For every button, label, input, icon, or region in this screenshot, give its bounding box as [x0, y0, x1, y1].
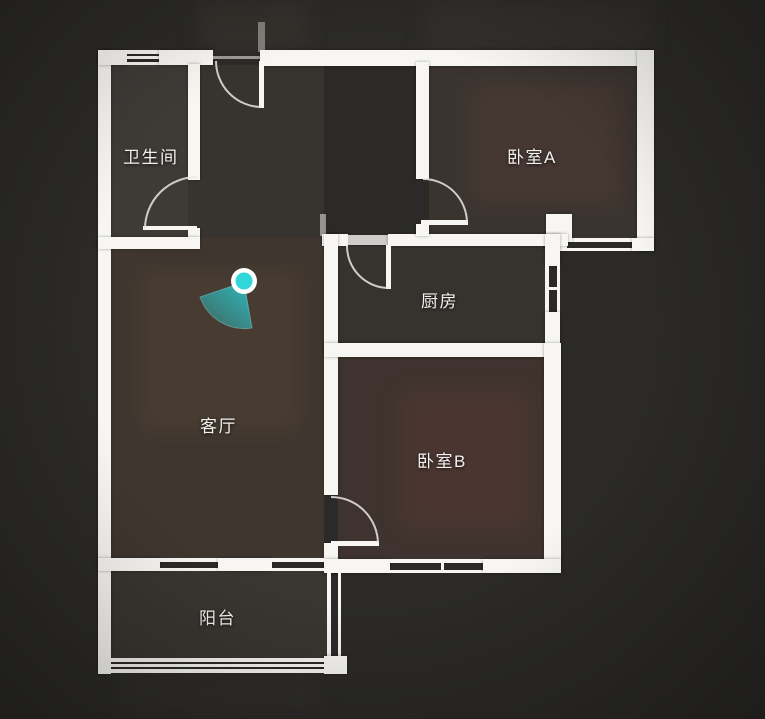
kitchen-door-arc	[347, 246, 388, 288]
camera-dot	[236, 273, 253, 290]
room-label-balcony[interactable]: 阳台	[199, 604, 236, 629]
camera-position-indicator[interactable]	[200, 268, 257, 329]
bedroom-a-door-arc	[423, 179, 467, 222]
floorplan-viewer: 卫生间 卧室A 厨房 客厅 卧室B 阳台	[0, 0, 765, 719]
room-label-bedroom-b[interactable]: 卧室B	[417, 447, 467, 472]
bathroom-door-arc	[145, 177, 197, 229]
room-label-bathroom[interactable]: 卫生间	[123, 143, 179, 168]
doors-and-camera-layer	[0, 0, 765, 719]
room-label-kitchen[interactable]: 厨房	[421, 287, 458, 312]
bedroom-b-door-arc	[331, 497, 378, 543]
room-label-living-room[interactable]: 客厅	[200, 412, 237, 437]
entry-door-arc	[216, 61, 261, 107]
room-label-bedroom-a[interactable]: 卧室A	[507, 143, 557, 168]
